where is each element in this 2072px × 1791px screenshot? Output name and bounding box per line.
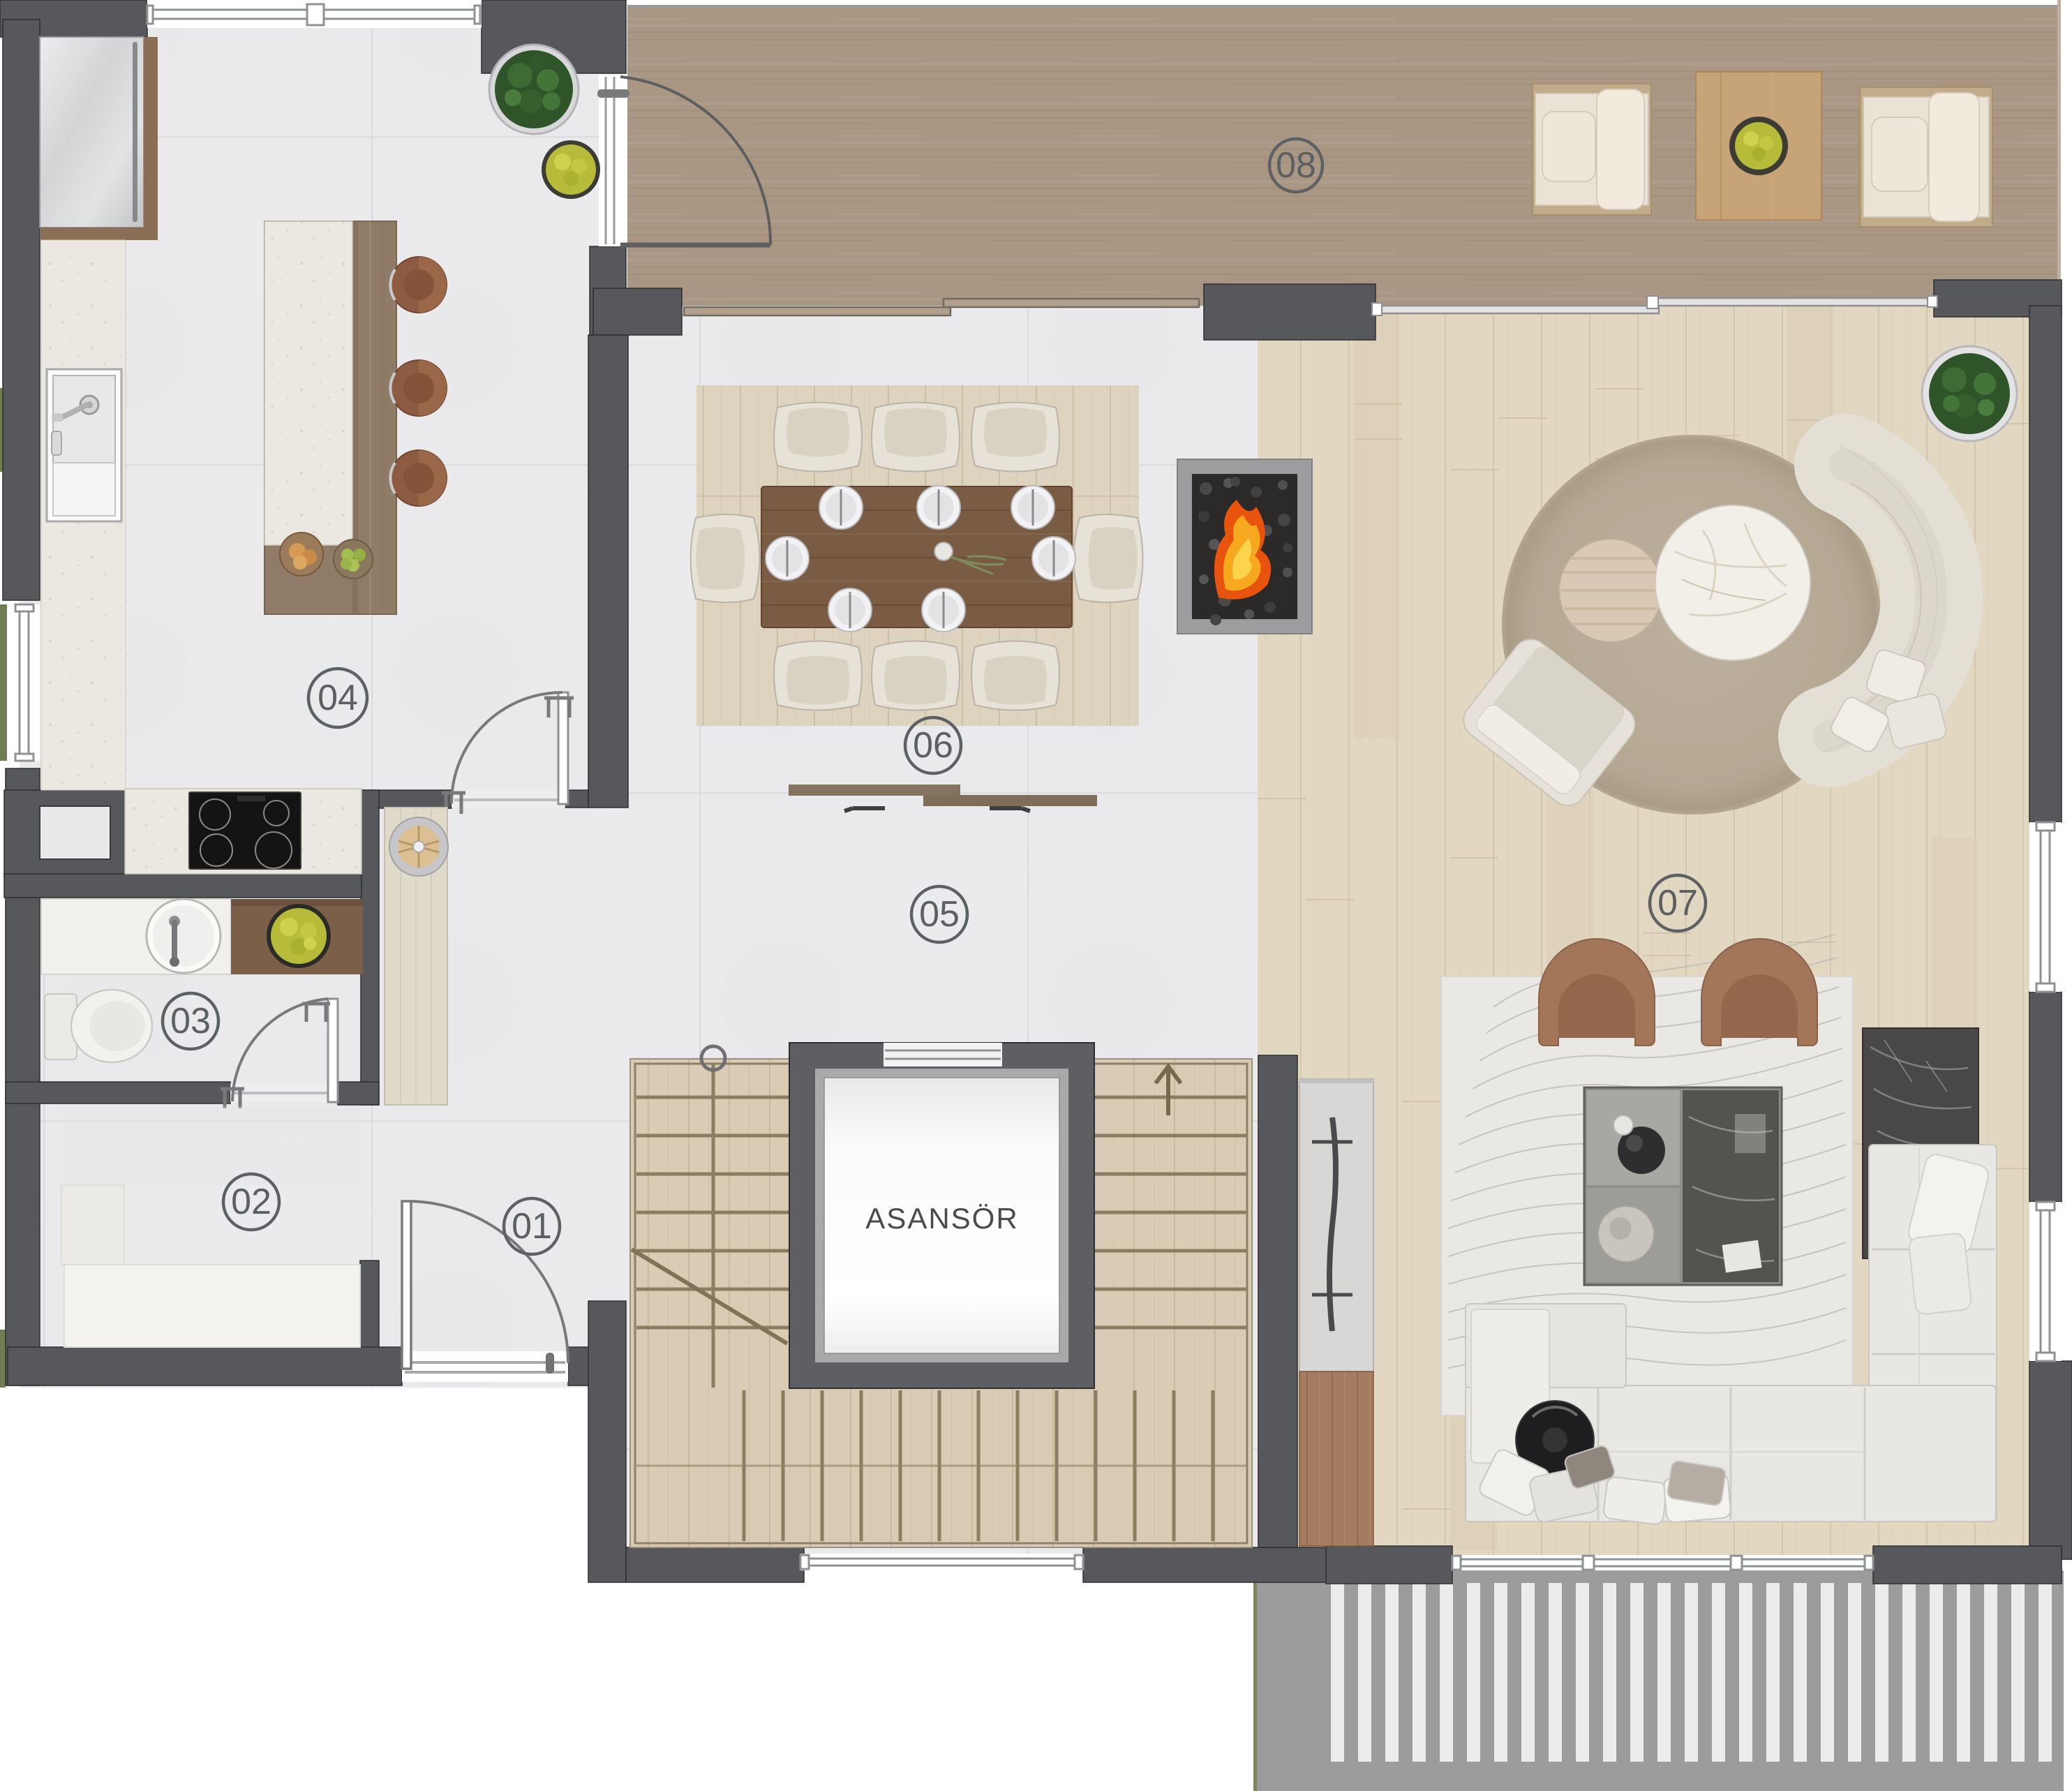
- svg-text:02: 02: [231, 1182, 271, 1222]
- svg-text:08: 08: [1276, 145, 1316, 186]
- svg-text:05: 05: [919, 894, 960, 935]
- svg-text:07: 07: [1657, 883, 1698, 923]
- svg-text:ASANSÖR: ASANSÖR: [865, 1202, 1018, 1235]
- svg-text:06: 06: [913, 725, 953, 766]
- svg-text:04: 04: [318, 678, 358, 718]
- svg-text:03: 03: [170, 1001, 211, 1041]
- svg-text:01: 01: [512, 1206, 552, 1247]
